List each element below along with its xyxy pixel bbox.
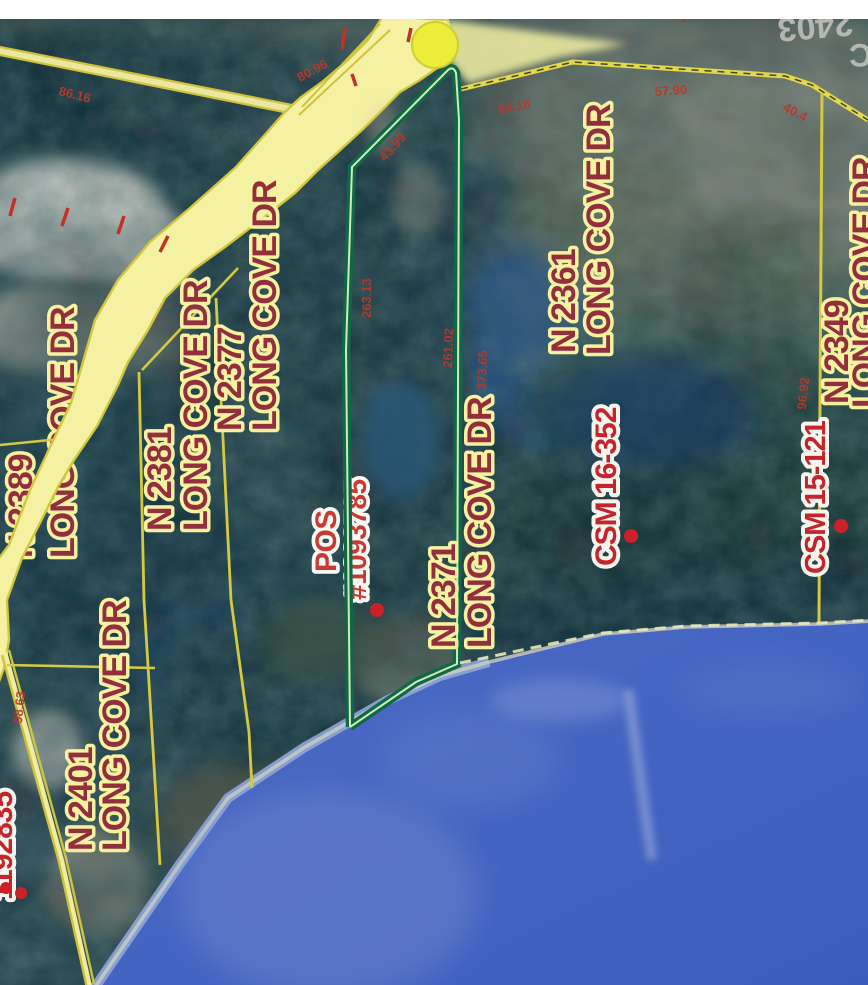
svg-text:POS: POS xyxy=(310,510,343,572)
svg-text:373.65: 373.65 xyxy=(474,350,490,390)
svg-text:57.90: 57.90 xyxy=(654,82,688,99)
svg-text:LONG COVE DR: LONG COVE DR xyxy=(580,104,618,355)
svg-text:LONG COVE DR: LONG COVE DR xyxy=(177,280,215,531)
svg-text:LONG COVE DR: LONG COVE DR xyxy=(246,180,284,431)
svg-text:CSM 16-352: CSM 16-352 xyxy=(590,407,623,566)
svg-text:LONG COVE DR: LONG COVE DR xyxy=(461,397,499,648)
svg-text:OC: OC xyxy=(849,37,868,73)
svg-text:N 2377: N 2377 xyxy=(211,327,249,431)
svg-text:N 2381: N 2381 xyxy=(141,427,179,531)
svg-text:CSM 15-121: CSM 15-121 xyxy=(800,420,832,574)
svg-text:263.13: 263.13 xyxy=(359,278,374,318)
svg-text:LONG COVE DR: LONG COVE DR xyxy=(846,157,868,408)
svg-text:N 2361: N 2361 xyxy=(545,249,583,353)
svg-text:261.02: 261.02 xyxy=(440,328,456,368)
svg-text:LONG COVE DR: LONG COVE DR xyxy=(96,600,134,851)
svg-text:N 2401: N 2401 xyxy=(62,747,100,851)
svg-text:N 2371: N 2371 xyxy=(425,544,463,648)
